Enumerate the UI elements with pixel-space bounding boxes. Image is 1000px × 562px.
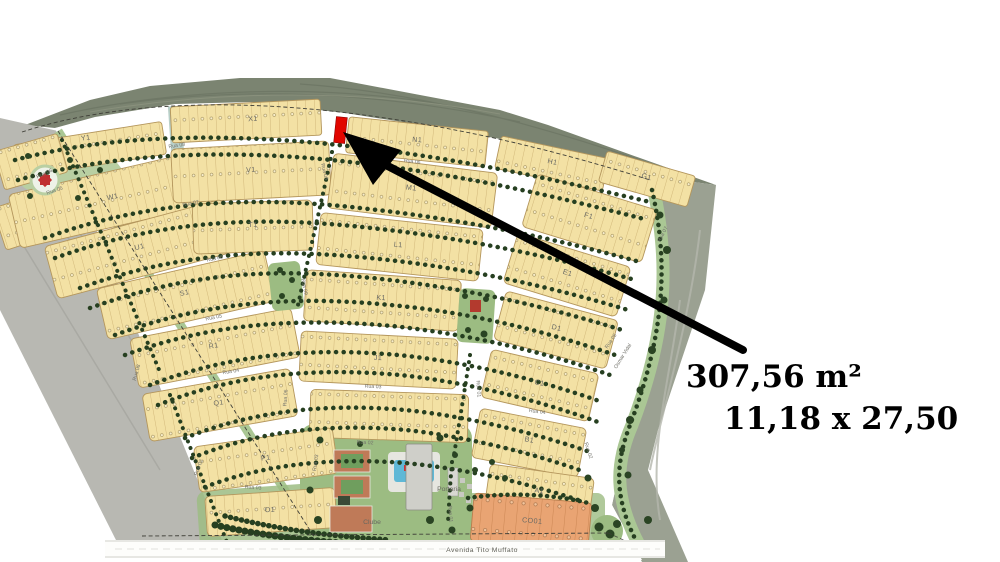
block-label: T1 (248, 220, 258, 229)
block-label: V1 (246, 165, 256, 174)
commercial-block-label: CO01 (522, 515, 543, 526)
club-label: Clube (363, 519, 381, 526)
street-label: Rua 01 (474, 380, 481, 397)
block-label: O1 (264, 505, 275, 515)
block-label: X1 (248, 114, 258, 123)
avenue-label: Avenida Tito Muffato (446, 547, 518, 554)
club-building (406, 444, 432, 510)
square-red-building (470, 300, 481, 312)
lot-area-text: 307,56 m² (686, 359, 862, 395)
block-label: N1 (412, 135, 423, 145)
block-label: A1 (534, 485, 545, 495)
site-plan-map: Avenida Tito Muffato Y1 X1 N1 H1 G1 W1 V… (0, 0, 1000, 562)
block-label: L1 (393, 240, 403, 250)
street-label: Rua 01 (446, 505, 453, 522)
street-label: Rua 03 (365, 384, 382, 391)
block-label: P1 (260, 452, 271, 462)
avenue: Avenida Tito Muffato (105, 540, 665, 558)
block-label: J1 (374, 353, 383, 362)
block-label: Y1 (80, 132, 91, 142)
club-shed (338, 496, 350, 505)
highlighted-lot[interactable] (334, 117, 348, 144)
street-label: Rua 06 (282, 389, 289, 406)
block-label: B1 (524, 434, 535, 445)
block-label: K1 (376, 293, 386, 302)
street-label: Rua 03 (245, 484, 262, 491)
street-label: Rua 02 (357, 440, 374, 447)
lot-annotation: 307,56 m² 11,18 x 27,50 (686, 359, 958, 437)
lot-dimensions-text: 11,18 x 27,50 (724, 401, 958, 437)
site-plan-image: Avenida Tito Muffato Y1 X1 N1 H1 G1 W1 V… (0, 0, 1000, 562)
block-label: R1 (208, 340, 219, 351)
block-label: Q1 (213, 397, 225, 408)
gatehouse-label: Portaria (437, 486, 461, 493)
